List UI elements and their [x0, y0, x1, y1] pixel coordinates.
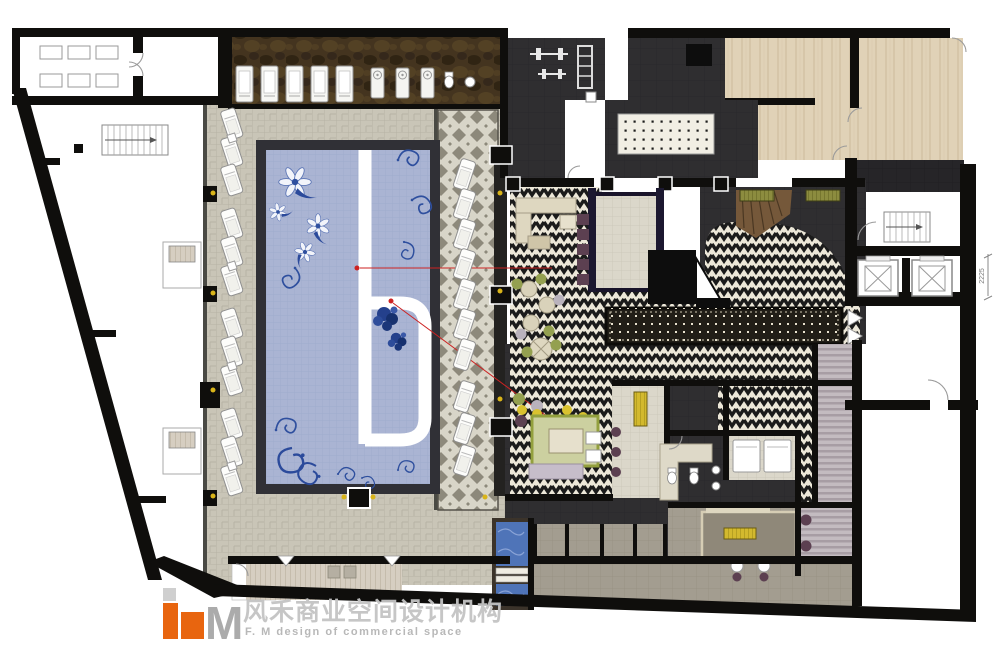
staircase-right — [858, 212, 930, 242]
floor-plan: 2225 M 风禾商业空间设计机构 F. M design of commerc… — [0, 0, 1000, 651]
staircase-top-left — [74, 125, 168, 155]
dark-room-top — [628, 38, 725, 100]
meeting-room-tables — [40, 46, 143, 87]
logo-orange-bar — [163, 603, 178, 639]
logo-orange-block — [181, 612, 204, 639]
dimension-annotation: 2225 — [979, 254, 992, 300]
entry-mat — [618, 114, 714, 154]
planter-boxes — [163, 242, 201, 474]
wood-rooms-floor — [725, 38, 963, 160]
floor-plan-canvas: 2225 M 风禾商业空间设计机构 F. M design of commerc… — [0, 0, 1000, 651]
logo-gray-square — [163, 588, 176, 601]
company-logo: M 风禾商业空间设计机构 F. M design of commercial s… — [163, 588, 503, 649]
dimension-text: 2225 — [979, 268, 986, 284]
logo-chinese-name: 风禾商业空间设计机构 — [243, 597, 503, 626]
runner-carpet — [606, 308, 842, 344]
logo-letter-m: M — [205, 597, 243, 649]
logo-english-tagline: F. M design of commercial space — [245, 626, 463, 638]
